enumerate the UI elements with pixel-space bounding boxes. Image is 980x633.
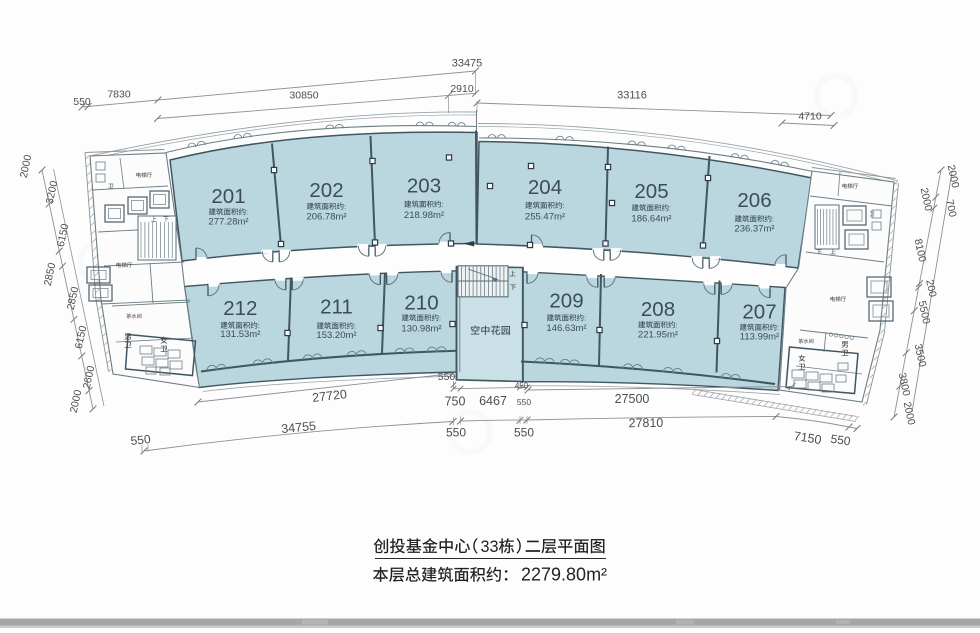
svg-text:7830: 7830 [107, 89, 131, 101]
svg-text:208: 208 [641, 298, 675, 321]
svg-text:450: 450 [515, 382, 529, 391]
svg-text:203: 203 [407, 175, 441, 198]
svg-text:750: 750 [445, 395, 466, 409]
svg-text::: : [344, 202, 346, 211]
svg-text:550: 550 [517, 397, 531, 407]
svg-text::: : [246, 208, 248, 217]
svg-text:201: 201 [211, 185, 245, 208]
svg-text:255.47m²: 255.47m² [525, 212, 565, 223]
svg-text:236.37m²: 236.37m² [734, 224, 774, 235]
svg-text:113.99m²: 113.99m² [740, 332, 779, 343]
svg-text:550: 550 [514, 426, 534, 440]
svg-text:27500: 27500 [615, 392, 650, 406]
svg-text:221.95m²: 221.95m² [638, 330, 678, 341]
svg-text:4710: 4710 [798, 111, 822, 123]
svg-text:206.78m²: 206.78m² [306, 212, 346, 223]
svg-text:210: 210 [404, 292, 438, 315]
svg-text:550: 550 [830, 432, 852, 449]
svg-text::: : [439, 314, 441, 323]
svg-text:6467: 6467 [479, 394, 507, 408]
svg-text:206: 206 [737, 189, 771, 212]
svg-text:204: 204 [528, 176, 562, 199]
svg-text:550: 550 [438, 371, 456, 383]
svg-text:205: 205 [634, 180, 668, 203]
svg-text:211: 211 [320, 296, 353, 319]
svg-text:130.98m²: 130.98m² [401, 324, 441, 335]
svg-text:209: 209 [549, 290, 583, 313]
svg-text:2910: 2910 [450, 83, 474, 95]
svg-text:550: 550 [446, 426, 466, 440]
svg-text:186.64m²: 186.64m² [631, 214, 671, 225]
svg-text:30850: 30850 [289, 90, 318, 102]
svg-text::: : [442, 200, 444, 209]
svg-text:550: 550 [73, 96, 91, 108]
svg-text:146.63m²: 146.63m² [546, 323, 586, 334]
svg-text:207: 207 [742, 301, 776, 324]
svg-text:33: 33 [480, 538, 498, 556]
svg-text:218.98m²: 218.98m² [404, 210, 444, 221]
svg-text::: : [563, 201, 565, 210]
svg-text::: : [676, 321, 678, 330]
svg-text:212: 212 [223, 297, 257, 320]
svg-text:2279.80m²: 2279.80m² [521, 565, 607, 585]
svg-text:277.28m²: 277.28m² [208, 217, 248, 228]
svg-text::: : [584, 314, 586, 323]
svg-text:33475: 33475 [452, 58, 483, 70]
svg-text:153.20m²: 153.20m² [316, 330, 356, 341]
svg-text::: : [669, 204, 671, 213]
svg-text::: : [772, 215, 774, 224]
svg-text:202: 202 [309, 179, 343, 202]
svg-text:131.53m²: 131.53m² [220, 329, 260, 340]
svg-text:27810: 27810 [628, 416, 663, 431]
svg-text:33116: 33116 [617, 90, 647, 102]
